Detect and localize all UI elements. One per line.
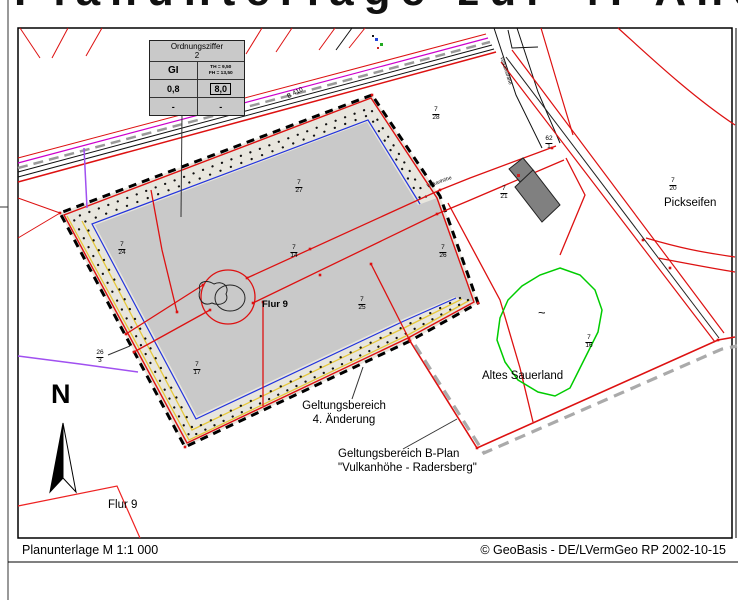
legend-title: Ordnungsziffer 2	[150, 41, 244, 61]
parcel-label-7-20: 720	[669, 178, 676, 193]
north-label: N	[51, 379, 71, 410]
parcel-label-7-27: 727	[295, 180, 302, 195]
parcel-label-7-21: 721	[500, 186, 507, 201]
parcel-label-7-25: 725	[358, 297, 365, 312]
legend-box: Ordnungsziffer 2 GI TH = 9,50 FH = 13,50…	[149, 40, 245, 116]
parcel-label-7-28: 728	[432, 107, 439, 122]
annotation-geltungsbereich: Geltungsbereich 4. Änderung	[302, 399, 386, 427]
legend-cell-grz: 0,8	[150, 80, 197, 97]
parcel-label-7-26: 726	[439, 245, 446, 260]
footer-copyright: © GeoBasis - DE/LVermGeo RP 2002-10-15	[480, 543, 726, 557]
legend-cell-dash-left: -	[150, 98, 197, 115]
parcel-label-26-3: 263	[96, 350, 103, 365]
area-label-flur9-center: Flur 9	[262, 299, 288, 310]
area-label-flur9-bottom: Flur 9	[108, 499, 137, 511]
legend-cell-height-boxed: 8,0	[197, 80, 245, 97]
parcel-label-7-14: 714	[290, 245, 297, 260]
biotope-mark: ~	[538, 305, 546, 320]
parcel-label-7-17: 717	[193, 362, 200, 377]
parcel-label-7-24: 724	[118, 242, 125, 257]
legend-cell-heights: TH = 9,50 FH = 13,50	[197, 62, 245, 79]
footer-scale: Planunterlage M 1:1 000	[22, 543, 158, 557]
annotation-bplan: Geltungsbereich B-Plan "Vulkanhöhe - Rad…	[338, 447, 477, 475]
parcel-label-62-1: 621	[545, 136, 552, 151]
area-label-altes-sauerland: Altes Sauerland	[482, 370, 563, 382]
area-label-pickseifen: Pickseifen	[664, 197, 716, 209]
legend-cell-dash-right: -	[197, 98, 245, 115]
parcel-label-7-16: 716	[585, 335, 592, 350]
legend-cell-gi: GI	[150, 62, 197, 79]
plan-document: Planunterlage zur 4. Änderung	[0, 0, 738, 600]
